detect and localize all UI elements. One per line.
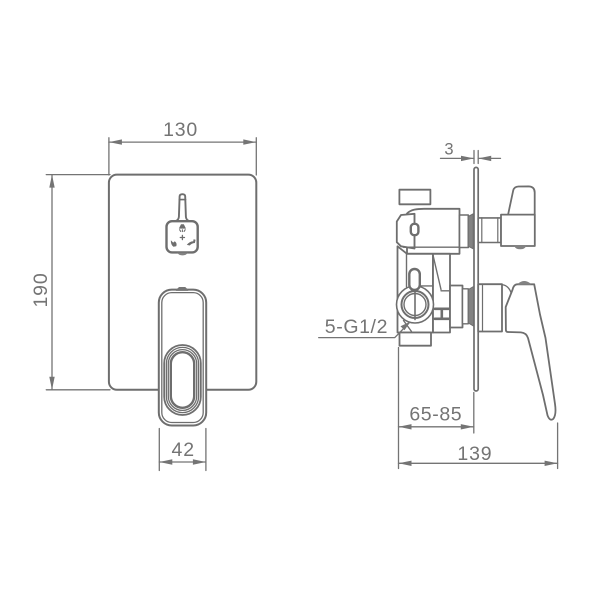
svg-text:5-G1/2: 5-G1/2 xyxy=(325,316,388,338)
svg-text:65-85: 65-85 xyxy=(409,403,462,425)
svg-text:190: 190 xyxy=(30,273,52,308)
svg-text:139: 139 xyxy=(457,443,492,465)
svg-text:130: 130 xyxy=(163,119,198,141)
svg-text:3: 3 xyxy=(444,141,453,159)
svg-text:42: 42 xyxy=(172,439,195,461)
